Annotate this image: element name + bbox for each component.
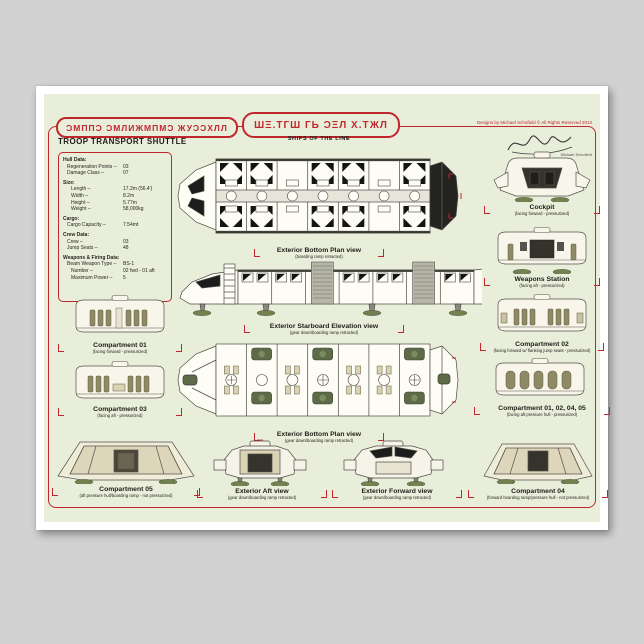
stats-panel: Hull Data: Regeneration Points –03 Damag…	[58, 152, 172, 302]
stat-row: Crew –03	[63, 239, 167, 246]
stat-row: Width –8.2m	[63, 193, 167, 200]
crop-bracket-icon	[594, 278, 600, 286]
stat-row: Maximum Power –5	[63, 275, 167, 282]
label-compartment-05: Compartment 05(aft pressure hull/boardin…	[52, 486, 200, 499]
crop-bracket-icon	[604, 407, 610, 415]
stat-row: Length –17.2m (56.4')	[63, 186, 167, 193]
label-forward-view: Exterior Forward view(gear down/boarding…	[332, 488, 462, 501]
stat-row: Cargo Capacity –7.54mt	[63, 222, 167, 229]
label-cockpit: Cockpit(facing forward - pressurized)	[484, 204, 600, 217]
copyright-text: Designs by Michael Schofield © All Right…	[477, 120, 592, 125]
crop-bracket-icon	[176, 344, 182, 352]
stats-section-title: Cargo:	[63, 216, 167, 223]
label-compartment-04: Compartment 04(forward boarding ramp/pre…	[468, 488, 608, 501]
stat-row: Jump Seats –48	[63, 245, 167, 252]
page-title: TROOP TRANSPORT SHUTTLE	[58, 137, 187, 146]
drawing-compartment-04	[480, 432, 596, 484]
drawing-bottom-plan-gear-view	[170, 332, 460, 428]
product-page-canvas: { "colors": { "canvas_gray": "#d2d2d2", …	[0, 0, 644, 644]
crop-bracket-icon	[594, 206, 600, 214]
drawing-compartment-group	[486, 356, 594, 402]
alien-title-box: ƆМППƆ ƆМЛИЖМПМƆ ЖУƆƆХЛЛ	[56, 117, 238, 138]
poster-field: ƆМППƆ ƆМЛИЖМПМƆ ЖУƆƆХЛЛ TROOP TRANSPORT …	[44, 94, 600, 522]
crop-bracket-icon	[598, 343, 604, 351]
drawing-cockpit	[492, 146, 592, 202]
drawing-compartment-05	[52, 430, 200, 484]
series-title-box: ШΞ.ТГШ ГЬ ƆΞЛ Х.ТЖЛ	[242, 112, 400, 138]
crop-bracket-icon	[378, 249, 384, 257]
poster: ƆМППƆ ƆМЛИЖМПМƆ ЖУƆƆХЛЛ TROOP TRANSPORT …	[36, 86, 608, 530]
drawing-weapons-station	[492, 222, 592, 274]
drawing-starboard-elevation-view	[166, 258, 482, 322]
label-compartment-02: Compartment 02(facing forward w/ flankin…	[480, 341, 604, 354]
drawing-forward-view	[336, 438, 451, 486]
label-compartment-03: Compartment 03(facing aft - pressurized)	[58, 406, 182, 419]
crop-bracket-icon	[602, 490, 608, 498]
stats-section-title: Weapons & Firing Data:	[63, 255, 167, 262]
series-subtitle: SHIPS OF THE LINE	[242, 136, 396, 142]
crop-bracket-icon	[194, 488, 200, 496]
crop-bracket-icon	[456, 490, 462, 498]
stat-row: Beam Weapon Type –BS-1	[63, 261, 167, 268]
crop-bracket-icon	[321, 490, 327, 498]
stat-row: Height –5.77m	[63, 200, 167, 207]
label-aft-view: Exterior Aft view(gear down/boarding ram…	[197, 488, 327, 501]
series-alien-glyphs: ШΞ.ТГШ ГЬ ƆΞЛ Х.ТЖЛ	[254, 120, 388, 131]
drawing-compartment-01	[58, 292, 182, 340]
drawing-aft-view	[210, 438, 310, 486]
drawing-bottom-plan-view	[170, 146, 464, 246]
stat-row: Damage Class –07	[63, 170, 167, 177]
drawing-compartment-02	[490, 292, 594, 338]
label-weapons-station: Weapons Station(facing aft - pressurized…	[484, 276, 600, 289]
crop-bracket-icon	[176, 408, 182, 416]
stats-section-title: Crew Data:	[63, 232, 167, 239]
stats-section-title: Hull Data:	[63, 157, 167, 164]
stat-row: Regeneration Points –03	[63, 164, 167, 171]
alien-title-glyphs: ƆМППƆ ƆМЛИЖМПМƆ ЖУƆƆХЛЛ	[66, 123, 228, 133]
label-compartment-01: Compartment 01(facing forward - pressuri…	[58, 342, 182, 355]
label-compartment-group: Compartment 01, 02, 04, 05(facing aft pr…	[474, 405, 610, 418]
stats-section-title: Size:	[63, 180, 167, 187]
stat-row: Number –02 fwd - 01 aft	[63, 268, 167, 275]
stat-row: Weight –58,000kg	[63, 206, 167, 213]
drawing-compartment-03	[58, 360, 182, 404]
